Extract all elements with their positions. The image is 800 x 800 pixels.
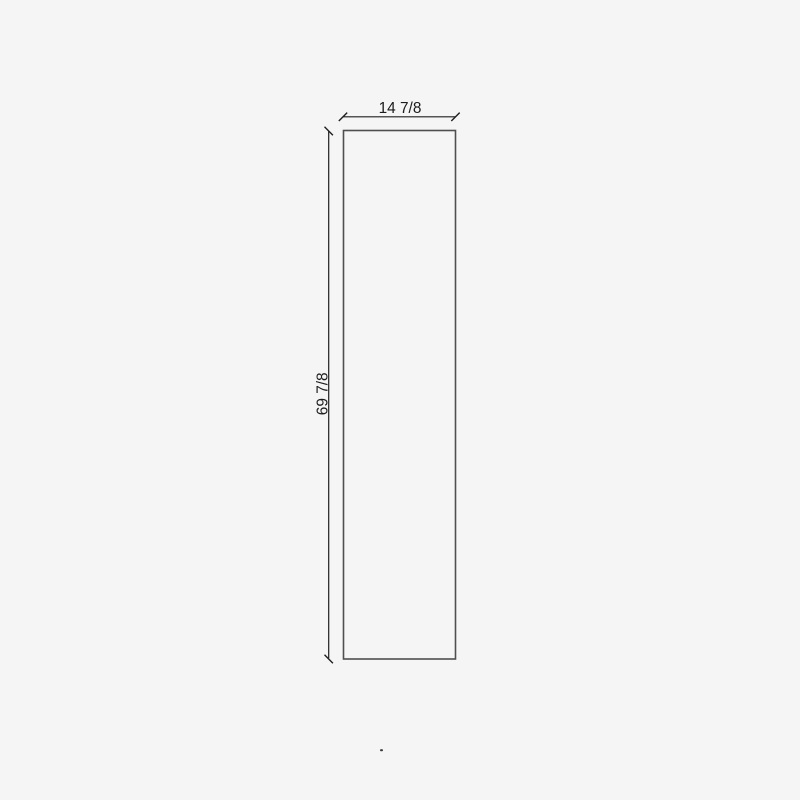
svg-text:14 7/8: 14 7/8 [379,100,422,117]
svg-text:69 7/8: 69 7/8 [315,372,332,415]
